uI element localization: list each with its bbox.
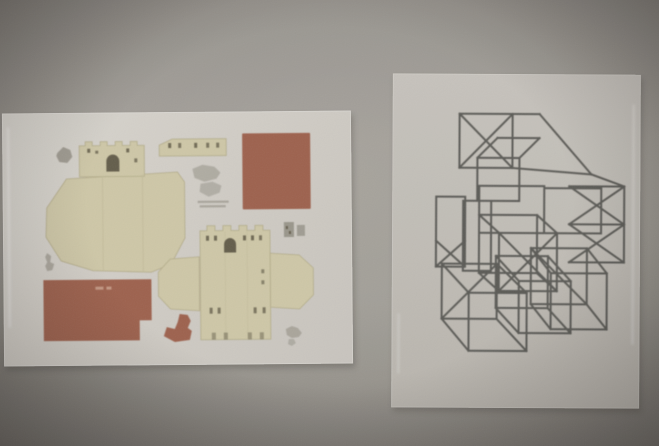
keep-door-arch [106, 155, 119, 172]
mid-rect-left [479, 186, 544, 233]
castle-template-sheet [2, 110, 353, 366]
small-gray-blob [56, 147, 72, 163]
wireframe-cubes-graphic [391, 73, 641, 408]
ink-lines [435, 114, 624, 352]
fine-print-line-1 [198, 201, 229, 203]
small-terracotta-hook-piece [164, 314, 192, 342]
left-tall-box-1 [436, 197, 465, 267]
square-roof-panel [242, 133, 311, 210]
left-tall-box-2 [463, 201, 491, 271]
cube-drawing-sheet [391, 73, 641, 408]
fine-print-line-2 [200, 205, 226, 207]
large-unfolded-base [45, 172, 185, 273]
gray-squiggle-a [192, 165, 220, 182]
small-accessory-1 [284, 222, 294, 237]
sleeve-reflection [397, 313, 399, 373]
left-side-flap [158, 257, 199, 311]
gray-splat-bottom-2 [288, 339, 296, 346]
gray-squiggle-b [200, 182, 222, 197]
castle2-door-arch [224, 238, 236, 253]
gray-splat-bottom [286, 326, 302, 338]
small-accessory-2 [297, 225, 305, 236]
photo-of-wall-with-two-sheets [0, 0, 659, 446]
gray-squiggle-left [45, 253, 54, 271]
right-side-flap [270, 253, 313, 309]
castle-template-graphic [2, 110, 353, 366]
